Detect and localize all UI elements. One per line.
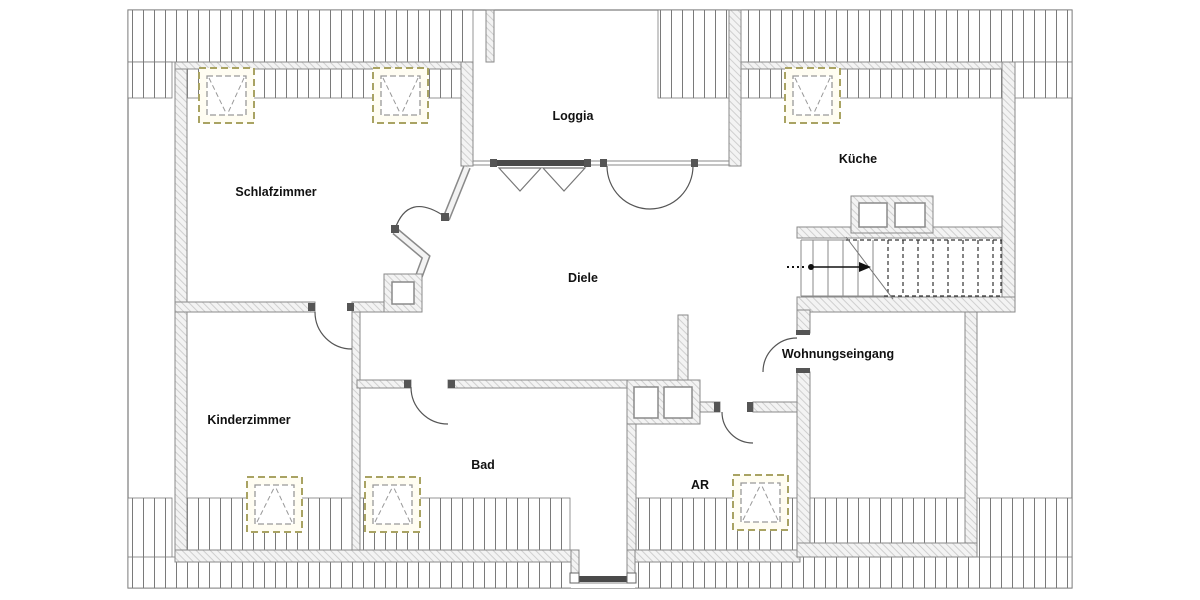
door-jambs: [308, 303, 810, 412]
room-label-wohnungseingang: Wohnungseingang: [782, 347, 894, 361]
skylight-icon: [365, 477, 420, 532]
wall-right-entrance: [965, 312, 977, 557]
skylight-icon: [247, 477, 302, 532]
chimney-flue: [392, 282, 414, 304]
door-jamb: [600, 159, 607, 167]
door-arc-loggia-left: [607, 166, 650, 209]
wall-kinderzimmer-top: [175, 302, 315, 312]
skylights: [199, 68, 840, 532]
skylight-icon: [785, 68, 840, 123]
wall-bottom-left: [175, 550, 571, 562]
door-arc-schlafzimmer: [395, 207, 444, 229]
window-jamb: [627, 573, 636, 583]
loggia-window-sill: [496, 160, 585, 166]
stair-treads-dashed: [888, 240, 993, 296]
roof-band-top-left: [128, 10, 473, 62]
wall-bottom-mid: [635, 550, 800, 562]
shaft-flue: [634, 387, 658, 418]
chimney-flue: [859, 203, 887, 227]
tilt-window-symbol: [499, 168, 541, 191]
wall-bad-top-left: [357, 380, 411, 388]
wall-entrance-left-lower: [797, 372, 810, 543]
door-arc-loggia-right: [650, 166, 693, 209]
wall-kinderzimmer-top-stub: [352, 302, 386, 312]
loggia-fixtures: [473, 159, 729, 209]
tilt-window-symbol: [543, 168, 585, 191]
wall-top-right: [729, 62, 1015, 69]
wall-loggia-right: [729, 10, 741, 166]
staircase: [787, 237, 1002, 299]
door-arcs: [315, 207, 797, 443]
chimney-flue: [895, 203, 925, 227]
room-label-kueche: Küche: [839, 152, 877, 166]
wall-loggia-left: [461, 62, 473, 166]
room-label-schlafzimmer: Schlafzimmer: [235, 185, 316, 199]
room-label-diele: Diele: [568, 271, 598, 285]
room-label-bad: Bad: [471, 458, 495, 472]
roof-over-loggia: [658, 10, 729, 98]
door-jamb: [691, 159, 698, 167]
room-label-loggia: Loggia: [553, 109, 595, 123]
room-label-ar: AR: [691, 478, 709, 492]
floorplan-page: Schlafzimmer Loggia Küche Diele Kinderzi…: [0, 0, 1200, 600]
skylight-icon: [733, 475, 788, 530]
floorplan-svg: Schlafzimmer Loggia Küche Diele Kinderzi…: [0, 0, 1200, 600]
room-labels: Schlafzimmer Loggia Küche Diele Kinderzi…: [207, 109, 894, 492]
window-jamb: [584, 159, 591, 167]
door-arc-kinderzimmer: [315, 312, 352, 349]
skylight-icon: [199, 68, 254, 123]
roof-band-top-right: [729, 10, 1072, 62]
skylight-icon: [373, 68, 428, 123]
stair-break-line: [846, 237, 893, 299]
roof-strip-left-top: [128, 62, 172, 98]
wall-ar-top-right: [753, 402, 797, 412]
wall-below-stairs: [797, 297, 1015, 312]
arrowhead-icon: [859, 262, 871, 272]
roof-strip-right-top: [1015, 62, 1072, 98]
wall-diele-east-stub: [678, 315, 688, 380]
wall-entrance-left-upper: [797, 310, 810, 333]
door-arc-ar: [722, 412, 753, 443]
wall-schlafzimmer-diagonal: [391, 167, 467, 276]
wall-kinderzimmer-bad-divider: [352, 312, 360, 550]
window-jamb: [490, 159, 497, 167]
shaft-flue: [664, 387, 692, 418]
wall-right-upper: [1002, 62, 1015, 312]
window-sill: [578, 576, 627, 582]
wall-loggia-left-fin: [486, 10, 494, 62]
room-label-kinderzimmer: Kinderzimmer: [207, 413, 290, 427]
door-arc-bad: [411, 387, 448, 424]
window-jamb: [570, 573, 579, 583]
wall-bottom-entrance: [797, 543, 977, 557]
